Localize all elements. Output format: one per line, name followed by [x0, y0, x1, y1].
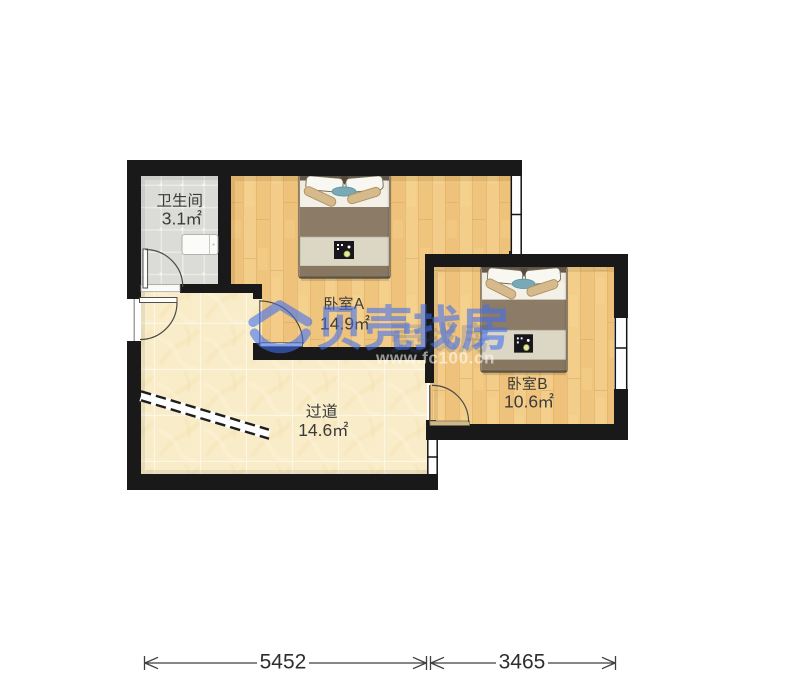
svg-text:3465: 3465: [499, 651, 546, 674]
svg-text:B: B: [537, 376, 547, 393]
svg-text:3.1: 3.1: [162, 209, 186, 229]
svg-text:14.6: 14.6: [298, 420, 332, 440]
svg-text:www.fc100.cn: www.fc100.cn: [375, 349, 495, 368]
svg-text:10.6: 10.6: [504, 392, 538, 412]
svg-text:5452: 5452: [260, 651, 307, 674]
